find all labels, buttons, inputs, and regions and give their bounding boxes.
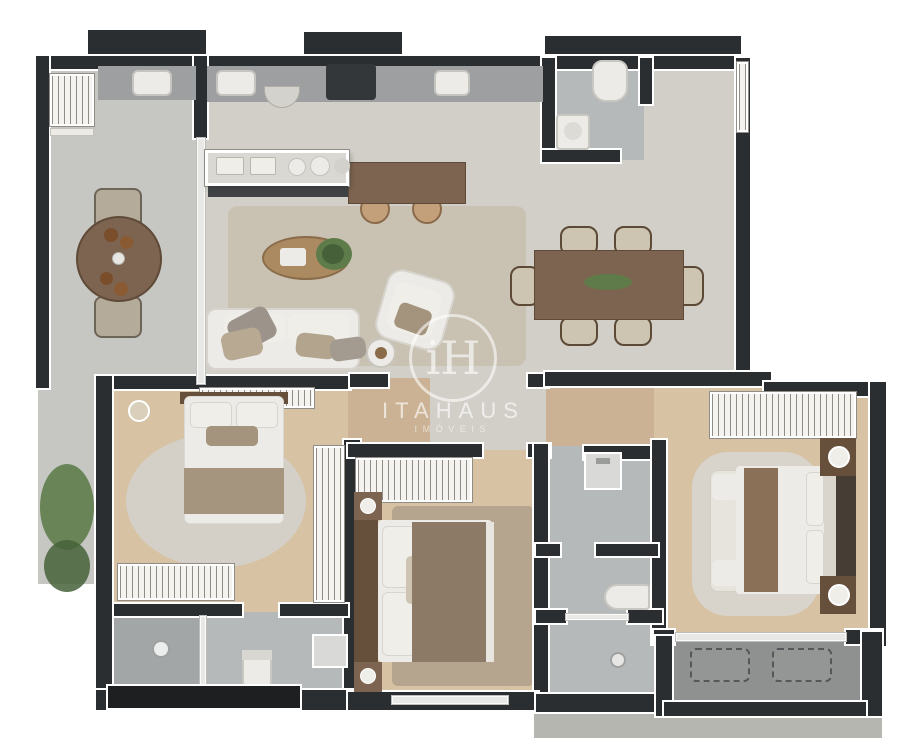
lavabo-niche bbox=[737, 62, 748, 132]
bedroom2-foot-runner bbox=[486, 522, 494, 662]
social-shower-head bbox=[152, 640, 170, 658]
suite-vanity-faucet bbox=[596, 458, 610, 464]
master-pillow-1 bbox=[806, 472, 824, 526]
terrace-plate-3 bbox=[100, 272, 113, 285]
glass-master-window bbox=[676, 633, 846, 641]
glass-bedroom2-window bbox=[392, 696, 508, 704]
master-headboard bbox=[824, 468, 836, 592]
bedroom2-lamp-2 bbox=[360, 668, 376, 684]
bedroom1-cushion bbox=[206, 426, 258, 446]
social-window-box bbox=[106, 684, 302, 710]
terrace-grill bbox=[50, 74, 94, 126]
wall-lavabo-bottom bbox=[542, 150, 620, 162]
terrace-plate-4 bbox=[114, 282, 128, 296]
bedroom1-blanket bbox=[184, 468, 284, 514]
bedroom1-pillow-1 bbox=[190, 402, 232, 428]
wall-socialbath-top-right bbox=[280, 604, 348, 616]
bedroom2-lamp-1 bbox=[360, 498, 376, 514]
planter-plants bbox=[40, 464, 94, 550]
balcony-lounger-2 bbox=[772, 648, 832, 682]
master-bench-pillow-1 bbox=[712, 474, 738, 500]
social-toilet-tank bbox=[242, 650, 272, 660]
lavabo-toilet bbox=[592, 60, 628, 102]
wall-bedroom2-top bbox=[348, 444, 482, 457]
wall-suite-left bbox=[534, 444, 548, 704]
dining-centerpiece bbox=[584, 274, 632, 290]
wall-living-bottom-stub bbox=[350, 374, 388, 387]
wall-master-right bbox=[870, 382, 886, 646]
master-bed-runner bbox=[744, 468, 778, 592]
bedroom1-pillow-2 bbox=[236, 402, 278, 428]
wall-lavabo-stub bbox=[640, 58, 652, 104]
wall-shower-stub-right bbox=[628, 610, 662, 623]
master-wardrobe bbox=[710, 392, 856, 438]
kitchen-sink-1 bbox=[216, 70, 256, 96]
kitchen-stove bbox=[326, 64, 376, 100]
island-basin-1 bbox=[216, 157, 244, 175]
wall-left bbox=[36, 56, 49, 388]
wall-shower-stub-left bbox=[536, 610, 566, 623]
master-headboard-frame bbox=[836, 476, 856, 586]
balcony-lounger-1 bbox=[690, 648, 750, 682]
coffee-table-plant-dark bbox=[322, 244, 344, 264]
dining-chair-3 bbox=[560, 316, 598, 346]
kitchen-bar bbox=[348, 162, 466, 204]
bedroom1-wardrobe-bottom bbox=[118, 564, 234, 600]
glass-terrace-door bbox=[197, 138, 205, 384]
wall-suite-mid-right bbox=[596, 544, 658, 556]
terrace-plate-2 bbox=[120, 236, 133, 249]
wall-wing-left bbox=[96, 376, 112, 710]
suite-shower-drain bbox=[610, 652, 626, 668]
coffee-table-tray bbox=[280, 248, 306, 266]
bedroom1-wardrobe-right bbox=[314, 446, 344, 602]
terrace-plate-1 bbox=[104, 228, 118, 242]
wall-wing-mid bbox=[545, 372, 771, 386]
wall-suite-mid-left bbox=[536, 544, 560, 556]
kitchen-sink-2 bbox=[434, 70, 470, 96]
bedroom2-blanket bbox=[412, 522, 492, 662]
island-plate-2 bbox=[310, 156, 330, 176]
bedroom1-pendant-lamp bbox=[128, 400, 150, 422]
island-shadow bbox=[208, 186, 348, 197]
lavabo-sink-bowl bbox=[564, 122, 582, 140]
planter-plants-2 bbox=[44, 540, 90, 592]
terrace-table-vase bbox=[112, 252, 125, 265]
wall-socialbath-top-left bbox=[110, 604, 242, 616]
wall-balcony-bottom bbox=[664, 702, 866, 716]
terrace-grill-handles bbox=[50, 128, 94, 136]
side-table-top bbox=[375, 347, 387, 359]
island-plate-1 bbox=[288, 158, 306, 176]
suite-toilet bbox=[604, 584, 650, 610]
glass-suite-shower bbox=[566, 614, 628, 620]
terrace-sink bbox=[132, 70, 172, 96]
terrace-chair-bottom bbox=[94, 296, 142, 338]
wall-suite-bottom bbox=[536, 694, 664, 712]
bedroom2-headboard bbox=[354, 520, 378, 662]
island-plate-3 bbox=[334, 158, 350, 174]
master-lamp-1 bbox=[828, 446, 850, 468]
social-vanity bbox=[312, 634, 348, 668]
master-bench-pillow-2 bbox=[712, 560, 738, 586]
wall-lavabo-left bbox=[542, 58, 555, 162]
floor-plan-canvas: iH ITAHAUS IMÓVEIS bbox=[0, 0, 900, 754]
master-lamp-2 bbox=[828, 584, 850, 606]
dining-chair-4 bbox=[614, 316, 652, 346]
island-basin-2 bbox=[250, 157, 276, 175]
